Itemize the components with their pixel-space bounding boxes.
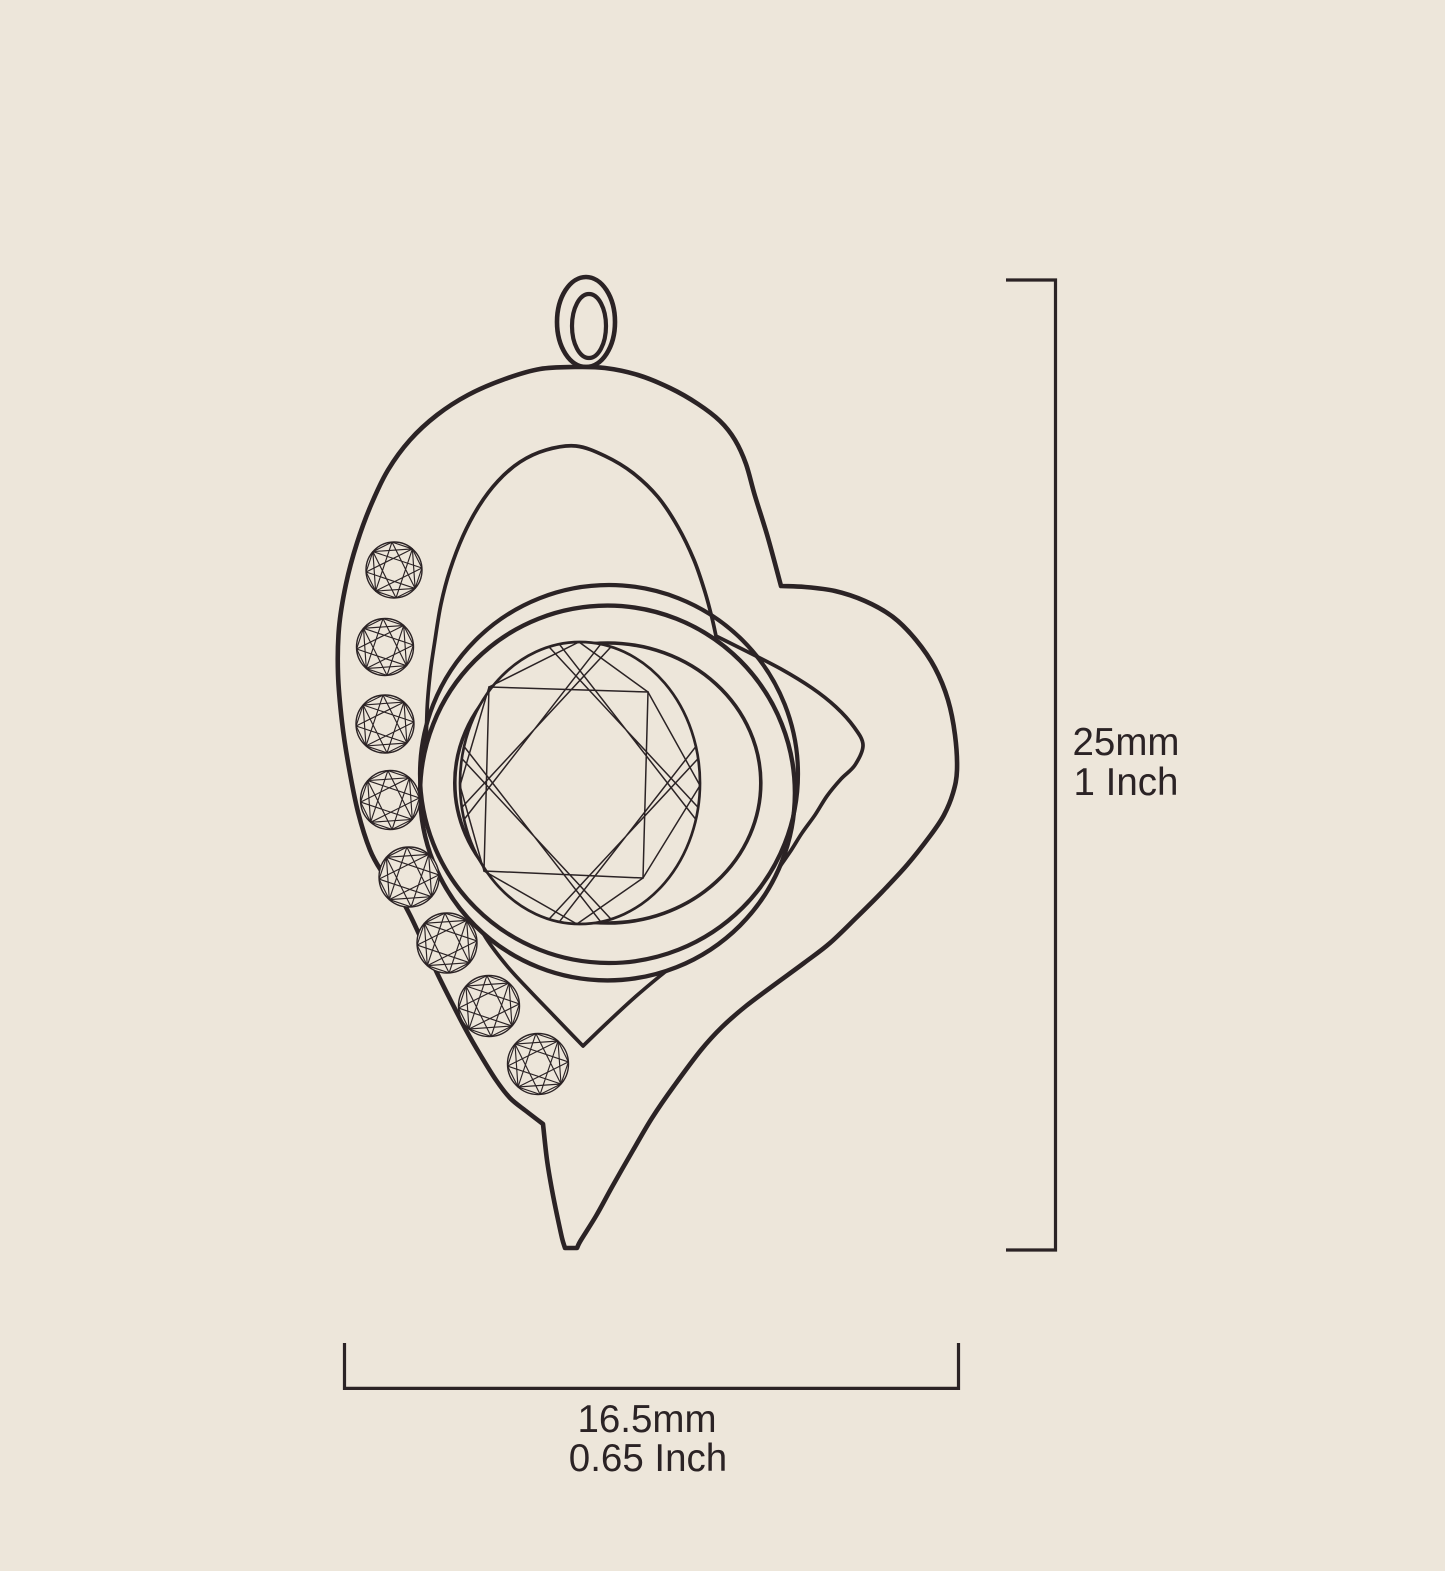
svg-text:25mm: 25mm xyxy=(1073,721,1180,764)
svg-text:0.65 Inch: 0.65 Inch xyxy=(569,1437,727,1480)
svg-text:16.5mm: 16.5mm xyxy=(577,1398,716,1441)
svg-text:1 Inch: 1 Inch xyxy=(1074,761,1179,804)
